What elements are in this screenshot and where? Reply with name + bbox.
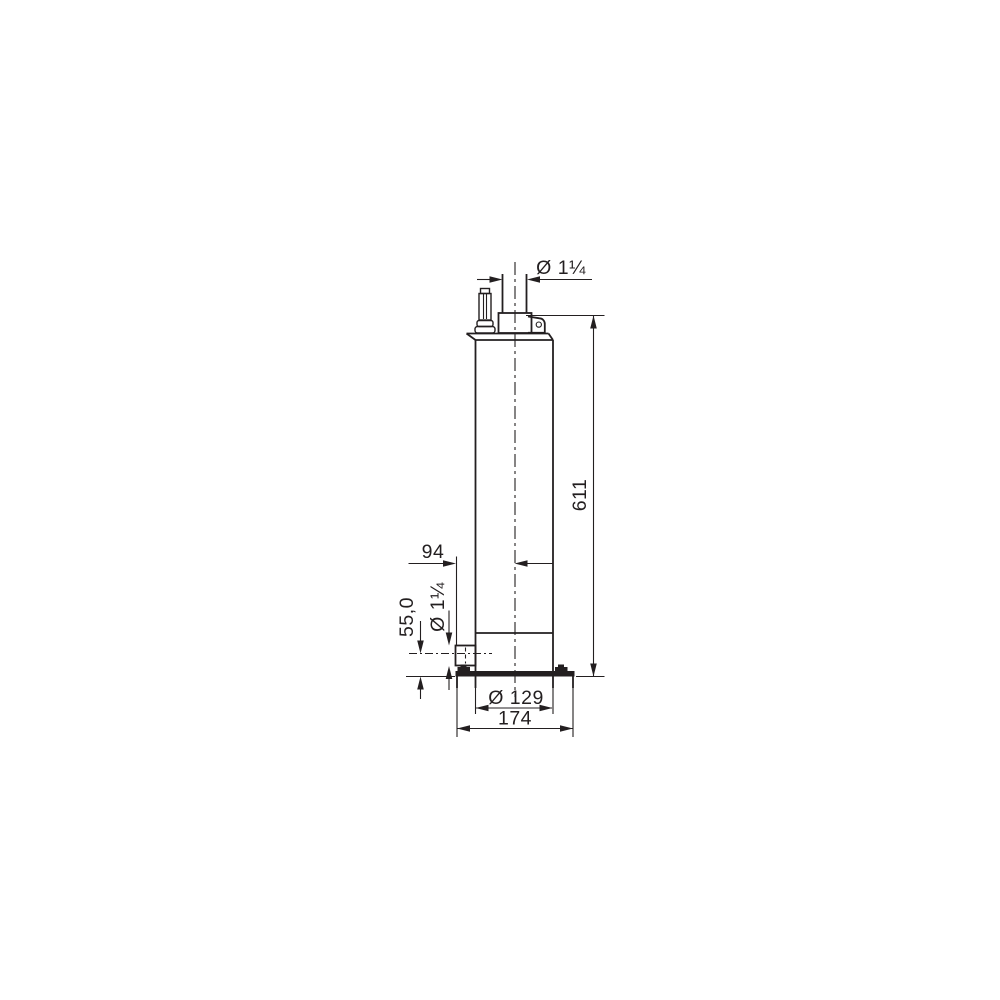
gland-dome xyxy=(475,327,495,334)
arrowhead-down-icon xyxy=(417,641,424,654)
arrowhead-left-icon xyxy=(457,725,470,732)
page-background: Ø 1¼ 611 94 55,0 xyxy=(0,0,1000,1000)
port-diameter-label: Ø 1¼ xyxy=(427,582,449,632)
right-bolt-cap xyxy=(558,665,564,668)
arrowhead-down-icon xyxy=(590,664,597,677)
dimension-port-diameter: Ø 1¼ xyxy=(427,582,452,690)
bracket-hole xyxy=(536,322,541,327)
right-bolt-head xyxy=(555,667,568,672)
dimension-overall-height: 611 xyxy=(526,316,605,677)
arrowhead-up-icon xyxy=(446,666,453,679)
handle-bracket xyxy=(528,317,545,333)
arrowhead-left-icon xyxy=(476,705,489,712)
gland-body xyxy=(479,294,491,321)
gland-flange xyxy=(477,321,493,327)
arrowhead-right-icon xyxy=(490,276,503,283)
dimension-base-width: 174 xyxy=(457,708,573,732)
base-plate xyxy=(456,665,575,689)
base-bar xyxy=(456,671,575,677)
arrowhead-up-icon xyxy=(590,316,597,329)
pump-shoulder xyxy=(467,334,554,341)
shoulder-left-slant xyxy=(467,334,476,341)
arrowhead-left-icon xyxy=(515,560,528,567)
outlet-diameter-label: Ø 1¼ xyxy=(536,257,586,279)
arrowhead-right-icon xyxy=(443,560,456,567)
port-axis-height-label: 55,0 xyxy=(396,597,418,637)
arrowhead-down-icon xyxy=(446,633,453,646)
arrowhead-right-icon xyxy=(560,725,573,732)
left-bolt-cap xyxy=(461,665,467,668)
port-offset-label: 94 xyxy=(422,541,445,563)
dimension-outlet-diameter: Ø 1¼ xyxy=(477,257,592,283)
cable-end-cap xyxy=(481,289,490,294)
shoulder-right-slant xyxy=(549,334,554,341)
body-diameter-label: Ø 129 xyxy=(488,687,544,709)
arrowhead-up-icon xyxy=(417,677,424,690)
base-width-label: 174 xyxy=(498,708,532,730)
overall-height-label: 611 xyxy=(569,479,591,512)
left-bolt-head xyxy=(458,667,471,672)
cable-gland xyxy=(475,289,495,334)
pump-dimension-drawing: Ø 1¼ 611 94 55,0 xyxy=(0,0,1000,1000)
pump-body xyxy=(476,340,554,671)
